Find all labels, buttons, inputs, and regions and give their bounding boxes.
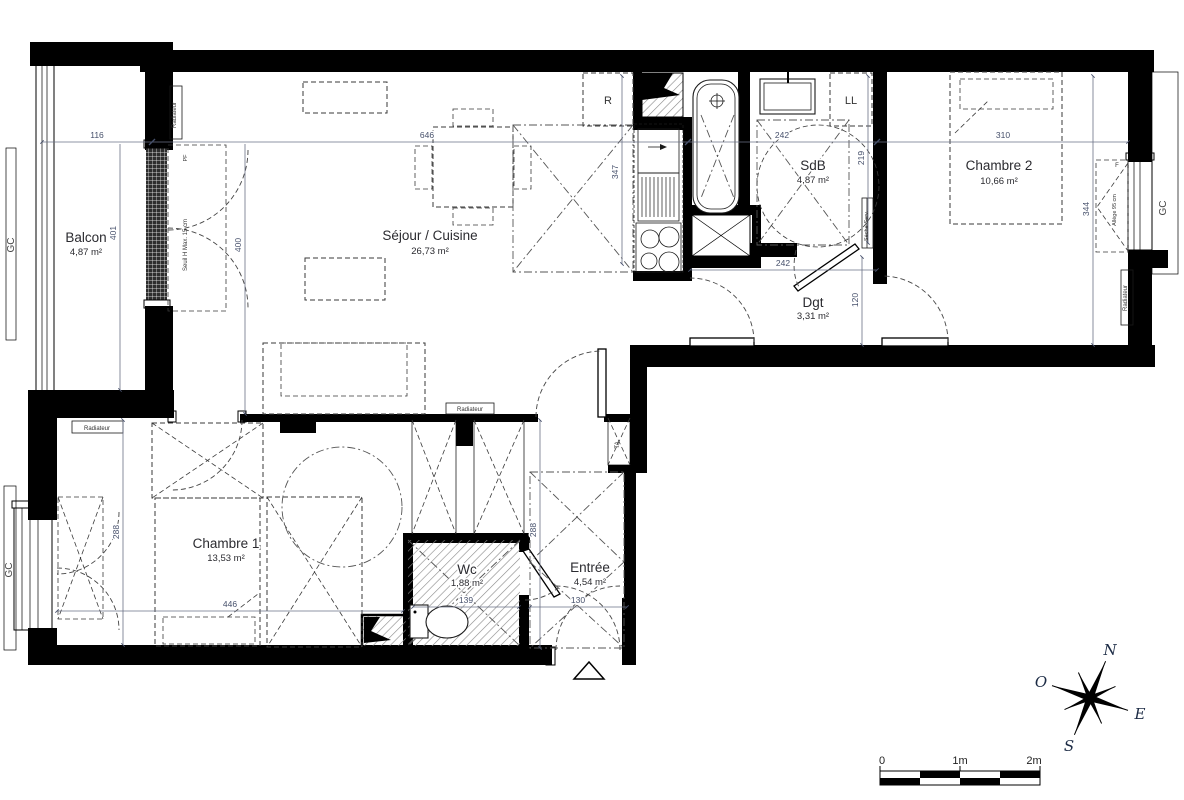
room-area-balcon: 4,87 m² (70, 247, 102, 258)
room-label-chambre2: Chambre 2 (966, 158, 1033, 173)
room-label-sejour: Séjour / Cuisine (382, 228, 477, 243)
dim-wc-width: 139 (459, 595, 473, 605)
room-label-chambre1: Chambre 1 (193, 536, 260, 551)
balcony-door-swing (168, 145, 248, 311)
ta-label: TA (615, 441, 621, 448)
fenetre-label: F (1115, 163, 1119, 169)
compass-north-label: N (1102, 641, 1117, 659)
dim-balcon-width: 116 (90, 130, 104, 140)
entrance-marker-triangle (574, 662, 604, 679)
radiator-label-chambre1: Radiateur (84, 426, 110, 432)
balcony-railing (36, 62, 54, 392)
coffee-table (305, 258, 385, 300)
seche-serviettes-label: Sèche-Serv. (864, 211, 870, 241)
compass-east-label: E (1134, 705, 1146, 723)
sofa (263, 343, 425, 414)
wc-room-fixtures (408, 540, 520, 646)
dim-chambre2-height: 344 (1081, 202, 1091, 216)
compass-south-label: S (1064, 737, 1074, 755)
wardrobe-chambre1-top (152, 423, 263, 498)
gc-label-left-top: GC (6, 238, 17, 253)
sejour-door (536, 349, 606, 417)
sideboard (303, 82, 387, 113)
cooktop (636, 223, 681, 272)
dim-entree-width: 130 (571, 595, 585, 605)
room-area-sdb: 4,87 m² (797, 175, 829, 186)
washing-machine-label: LL (845, 95, 857, 107)
room-label-wc: Wc (457, 562, 477, 577)
room-area-dgt: 3,31 m² (797, 311, 829, 322)
room-labels: Balcon 4,87 m² Séjour / Cuisine 26,73 m²… (65, 158, 1032, 589)
bath-shaft (692, 215, 750, 256)
wc-shaft (362, 615, 407, 647)
dim-sdb-height: 219 (856, 151, 866, 165)
compass-rose: N O E S (1035, 641, 1146, 755)
sdb-door (794, 244, 859, 291)
closet-entree-2 (474, 420, 524, 534)
dim-balcon-height: 401 (108, 226, 118, 240)
degagement-door (690, 278, 754, 346)
room-area-entree: 4,54 m² (574, 577, 606, 588)
gc-duct-right (1152, 72, 1178, 274)
bed-chambre2 (950, 72, 1062, 224)
chambre1-window (14, 508, 52, 630)
fridge-label: R (604, 95, 612, 107)
room-label-entree: Entrée (570, 560, 610, 575)
dim-sdb-width: 242 (775, 130, 789, 140)
closet-entree-1 (412, 420, 456, 534)
scale-2m-label: 2m (1026, 755, 1041, 767)
dim-sejour-width: 646 (420, 130, 434, 140)
radiator-label-balcon: Radiateur (172, 102, 178, 128)
room-area-chambre1: 13,53 m² (207, 553, 245, 564)
sink-faucet-icon (660, 144, 667, 150)
room-label-balcon: Balcon (65, 230, 106, 245)
kitchen-counter (634, 124, 683, 272)
scale-zero-label: 0 (879, 755, 885, 767)
scale-1m-label: 1m (952, 755, 967, 767)
kitchen-clearance (513, 125, 633, 272)
porte-fenetre-label: PF (183, 154, 189, 162)
bed-chambre1 (155, 498, 260, 646)
compass-west-label: O (1035, 673, 1047, 691)
radiator-label-chambre2: Radiateur (1123, 285, 1129, 311)
kitchen-sink (638, 129, 679, 173)
room-area-sejour: 26,73 m² (411, 246, 449, 257)
sink-drainer (638, 173, 679, 221)
closet-chambre1-left (58, 497, 103, 619)
seuil-label: Seuil H Max. 15 cm (183, 219, 189, 271)
toilet-bowl (426, 606, 468, 638)
doors (57, 145, 1128, 679)
room-label-dgt: Dgt (802, 295, 823, 310)
radiator-label-sejour: Radiateur (457, 407, 483, 413)
floor-plan: 116 646 242 310 401 400 347 219 344 120 … (0, 0, 1184, 800)
gc-label-left-bottom: GC (4, 563, 15, 578)
dim-sejour-height: 400 (233, 238, 243, 252)
gc-label-right: GC (1158, 201, 1169, 216)
kitchen-shaft (642, 73, 683, 117)
room-area-wc: 1,88 m² (451, 578, 483, 589)
floor-plan-page: 116 646 242 310 401 400 347 219 344 120 … (0, 0, 1184, 800)
balcony-door-window (146, 148, 167, 300)
bathtub (693, 80, 739, 213)
dim-chambre1-height: 288 (111, 525, 121, 539)
dim-dgt-width: 242 (776, 258, 790, 268)
scale-bar: 0 1m 2m (879, 755, 1042, 785)
room-area-chambre2: 10,66 m² (980, 176, 1018, 187)
wardrobe-chambre1-right (267, 497, 362, 647)
toilet-tank (410, 605, 428, 638)
chambre1-turning-circle (282, 447, 402, 567)
dim-entree-height: 288 (528, 523, 538, 537)
dim-chambre2-width: 310 (996, 130, 1010, 140)
allege-label: Allège 95 cm (1112, 194, 1118, 226)
dim-dgt-height: 120 (850, 293, 860, 307)
room-label-sdb: SdB (800, 158, 826, 173)
dim-chambre1-width: 446 (223, 599, 237, 609)
wc-door (523, 549, 560, 600)
chambre2-door (882, 276, 948, 346)
dim-cuisine-height: 347 (610, 165, 620, 179)
chambre1-window-swing (57, 512, 119, 630)
